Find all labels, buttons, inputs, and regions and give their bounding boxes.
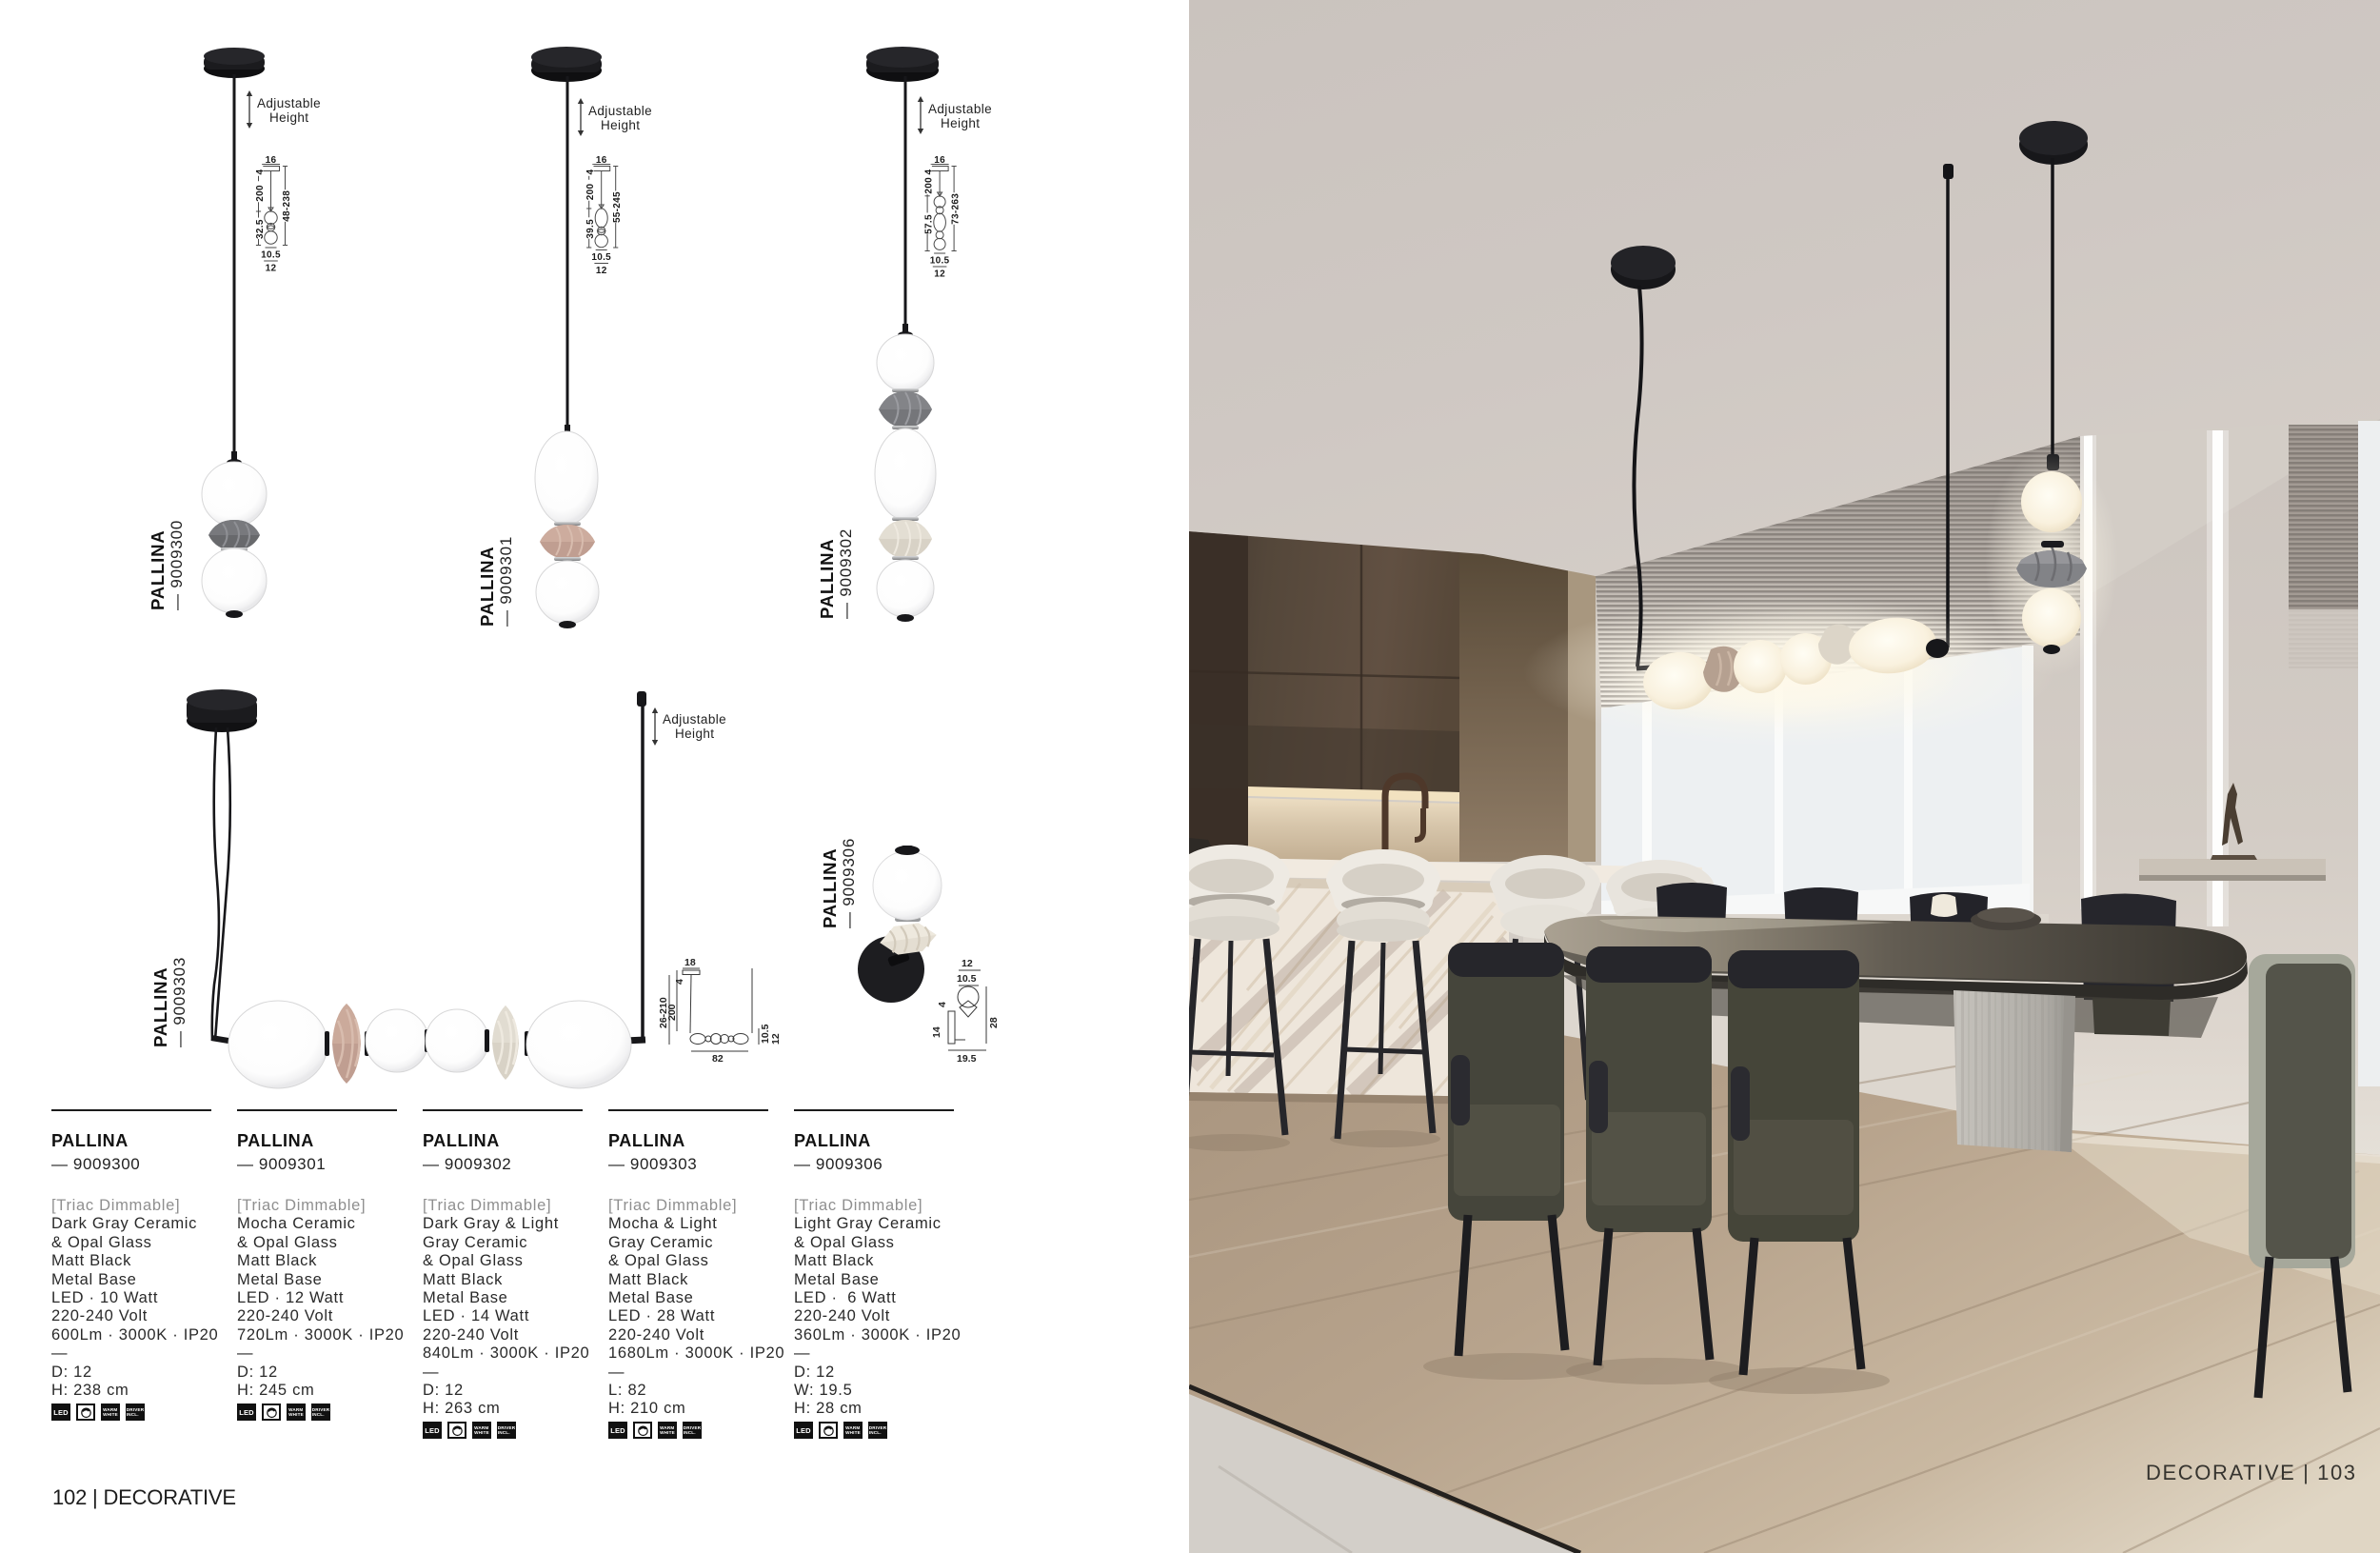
svg-text:57.5: 57.5 <box>924 214 935 234</box>
svg-text:14: 14 <box>931 1026 942 1038</box>
svg-text:200: 200 <box>585 184 596 201</box>
svg-text:12: 12 <box>770 1033 782 1045</box>
svg-text:10.5: 10.5 <box>930 256 950 267</box>
svg-text:28: 28 <box>988 1017 1000 1028</box>
svg-text:12: 12 <box>962 958 973 969</box>
svg-text:4: 4 <box>585 169 596 175</box>
svg-text:PALLINA: PALLINA <box>477 547 497 627</box>
svg-text:12: 12 <box>266 264 277 274</box>
svg-text:Adjustable: Adjustable <box>928 102 992 116</box>
svg-text:— 9009303: — 9009303 <box>170 957 188 1047</box>
svg-text:19.5: 19.5 <box>957 1053 977 1065</box>
svg-text:200: 200 <box>255 185 266 202</box>
svg-text:200: 200 <box>924 177 935 194</box>
svg-text:Height: Height <box>675 727 714 741</box>
svg-text:10.5: 10.5 <box>261 250 281 261</box>
svg-text:18: 18 <box>684 957 696 968</box>
svg-text:Adjustable: Adjustable <box>257 96 321 110</box>
svg-text:48-238: 48-238 <box>282 190 292 222</box>
svg-text:4: 4 <box>255 169 266 175</box>
svg-text:39.5: 39.5 <box>585 219 596 239</box>
svg-text:10.5: 10.5 <box>591 252 611 263</box>
svg-text:4: 4 <box>924 169 935 175</box>
svg-text:— 9009306: — 9009306 <box>840 838 858 928</box>
svg-text:4: 4 <box>674 979 685 985</box>
svg-text:32.5: 32.5 <box>255 219 266 239</box>
svg-text:— 9009301: — 9009301 <box>497 536 515 627</box>
svg-text:Height: Height <box>601 118 640 132</box>
svg-text:PALLINA: PALLINA <box>148 530 168 610</box>
svg-text:55-245: 55-245 <box>612 191 623 223</box>
svg-text:— 9009302: — 9009302 <box>837 528 855 619</box>
svg-text:4: 4 <box>937 1002 948 1007</box>
svg-text:Height: Height <box>269 110 308 125</box>
svg-text:PALLINA: PALLINA <box>820 848 840 928</box>
svg-text:Adjustable: Adjustable <box>663 712 726 727</box>
svg-text:10.5: 10.5 <box>957 973 977 985</box>
svg-text:PALLINA: PALLINA <box>817 539 837 619</box>
svg-text:Adjustable: Adjustable <box>588 104 652 118</box>
svg-text:73-263: 73-263 <box>951 193 962 225</box>
svg-text:— 9009300: — 9009300 <box>168 520 186 610</box>
svg-text:26-210: 26-210 <box>658 997 669 1028</box>
svg-text:PALLINA: PALLINA <box>150 967 170 1047</box>
svg-text:12: 12 <box>934 269 945 280</box>
svg-text:12: 12 <box>596 266 607 276</box>
svg-text:82: 82 <box>712 1053 724 1065</box>
svg-text:Height: Height <box>941 116 980 130</box>
